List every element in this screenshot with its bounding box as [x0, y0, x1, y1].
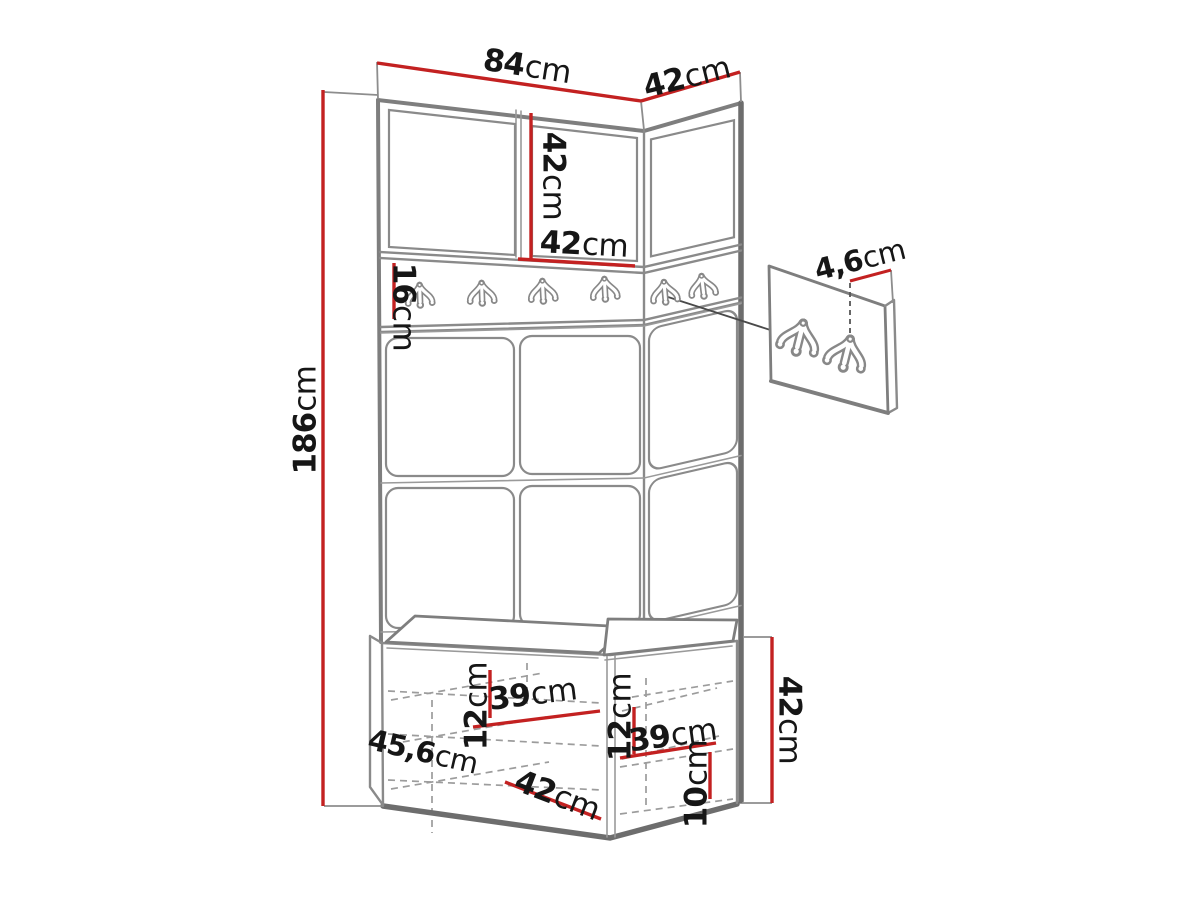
panel-side-row1	[649, 309, 737, 471]
furniture-line-drawing	[0, 0, 1200, 900]
dim-total-height: 186cm	[291, 366, 322, 475]
panel-row1-col1	[386, 338, 514, 476]
panel-row1-col2	[520, 336, 640, 474]
dim-door-height: 42cm	[538, 132, 569, 220]
dimension-diagram: 84cm 42cm 42cm 42cm 16cm 186cm 4,6cm 45,…	[0, 0, 1200, 900]
hook-row	[404, 272, 720, 310]
cabinet-door-side	[651, 120, 734, 256]
dim-shelf-gap-left: 12cm	[462, 662, 493, 750]
panel-side-row2	[649, 461, 737, 623]
wall-panels-front	[381, 326, 644, 632]
cushion-left	[386, 616, 629, 653]
dim-bench-height: 42cm	[774, 676, 805, 764]
panel-row2-col1	[386, 488, 514, 628]
cushion-right	[604, 619, 737, 655]
cabinet-door-left	[389, 110, 515, 255]
dim-door-width: 42cm	[539, 227, 629, 263]
panel-row2-col2	[520, 486, 640, 626]
dim-bottom-gap: 10cm	[682, 740, 713, 828]
side-face	[644, 119, 741, 628]
dim-hook-rail-height: 16cm	[388, 263, 419, 351]
